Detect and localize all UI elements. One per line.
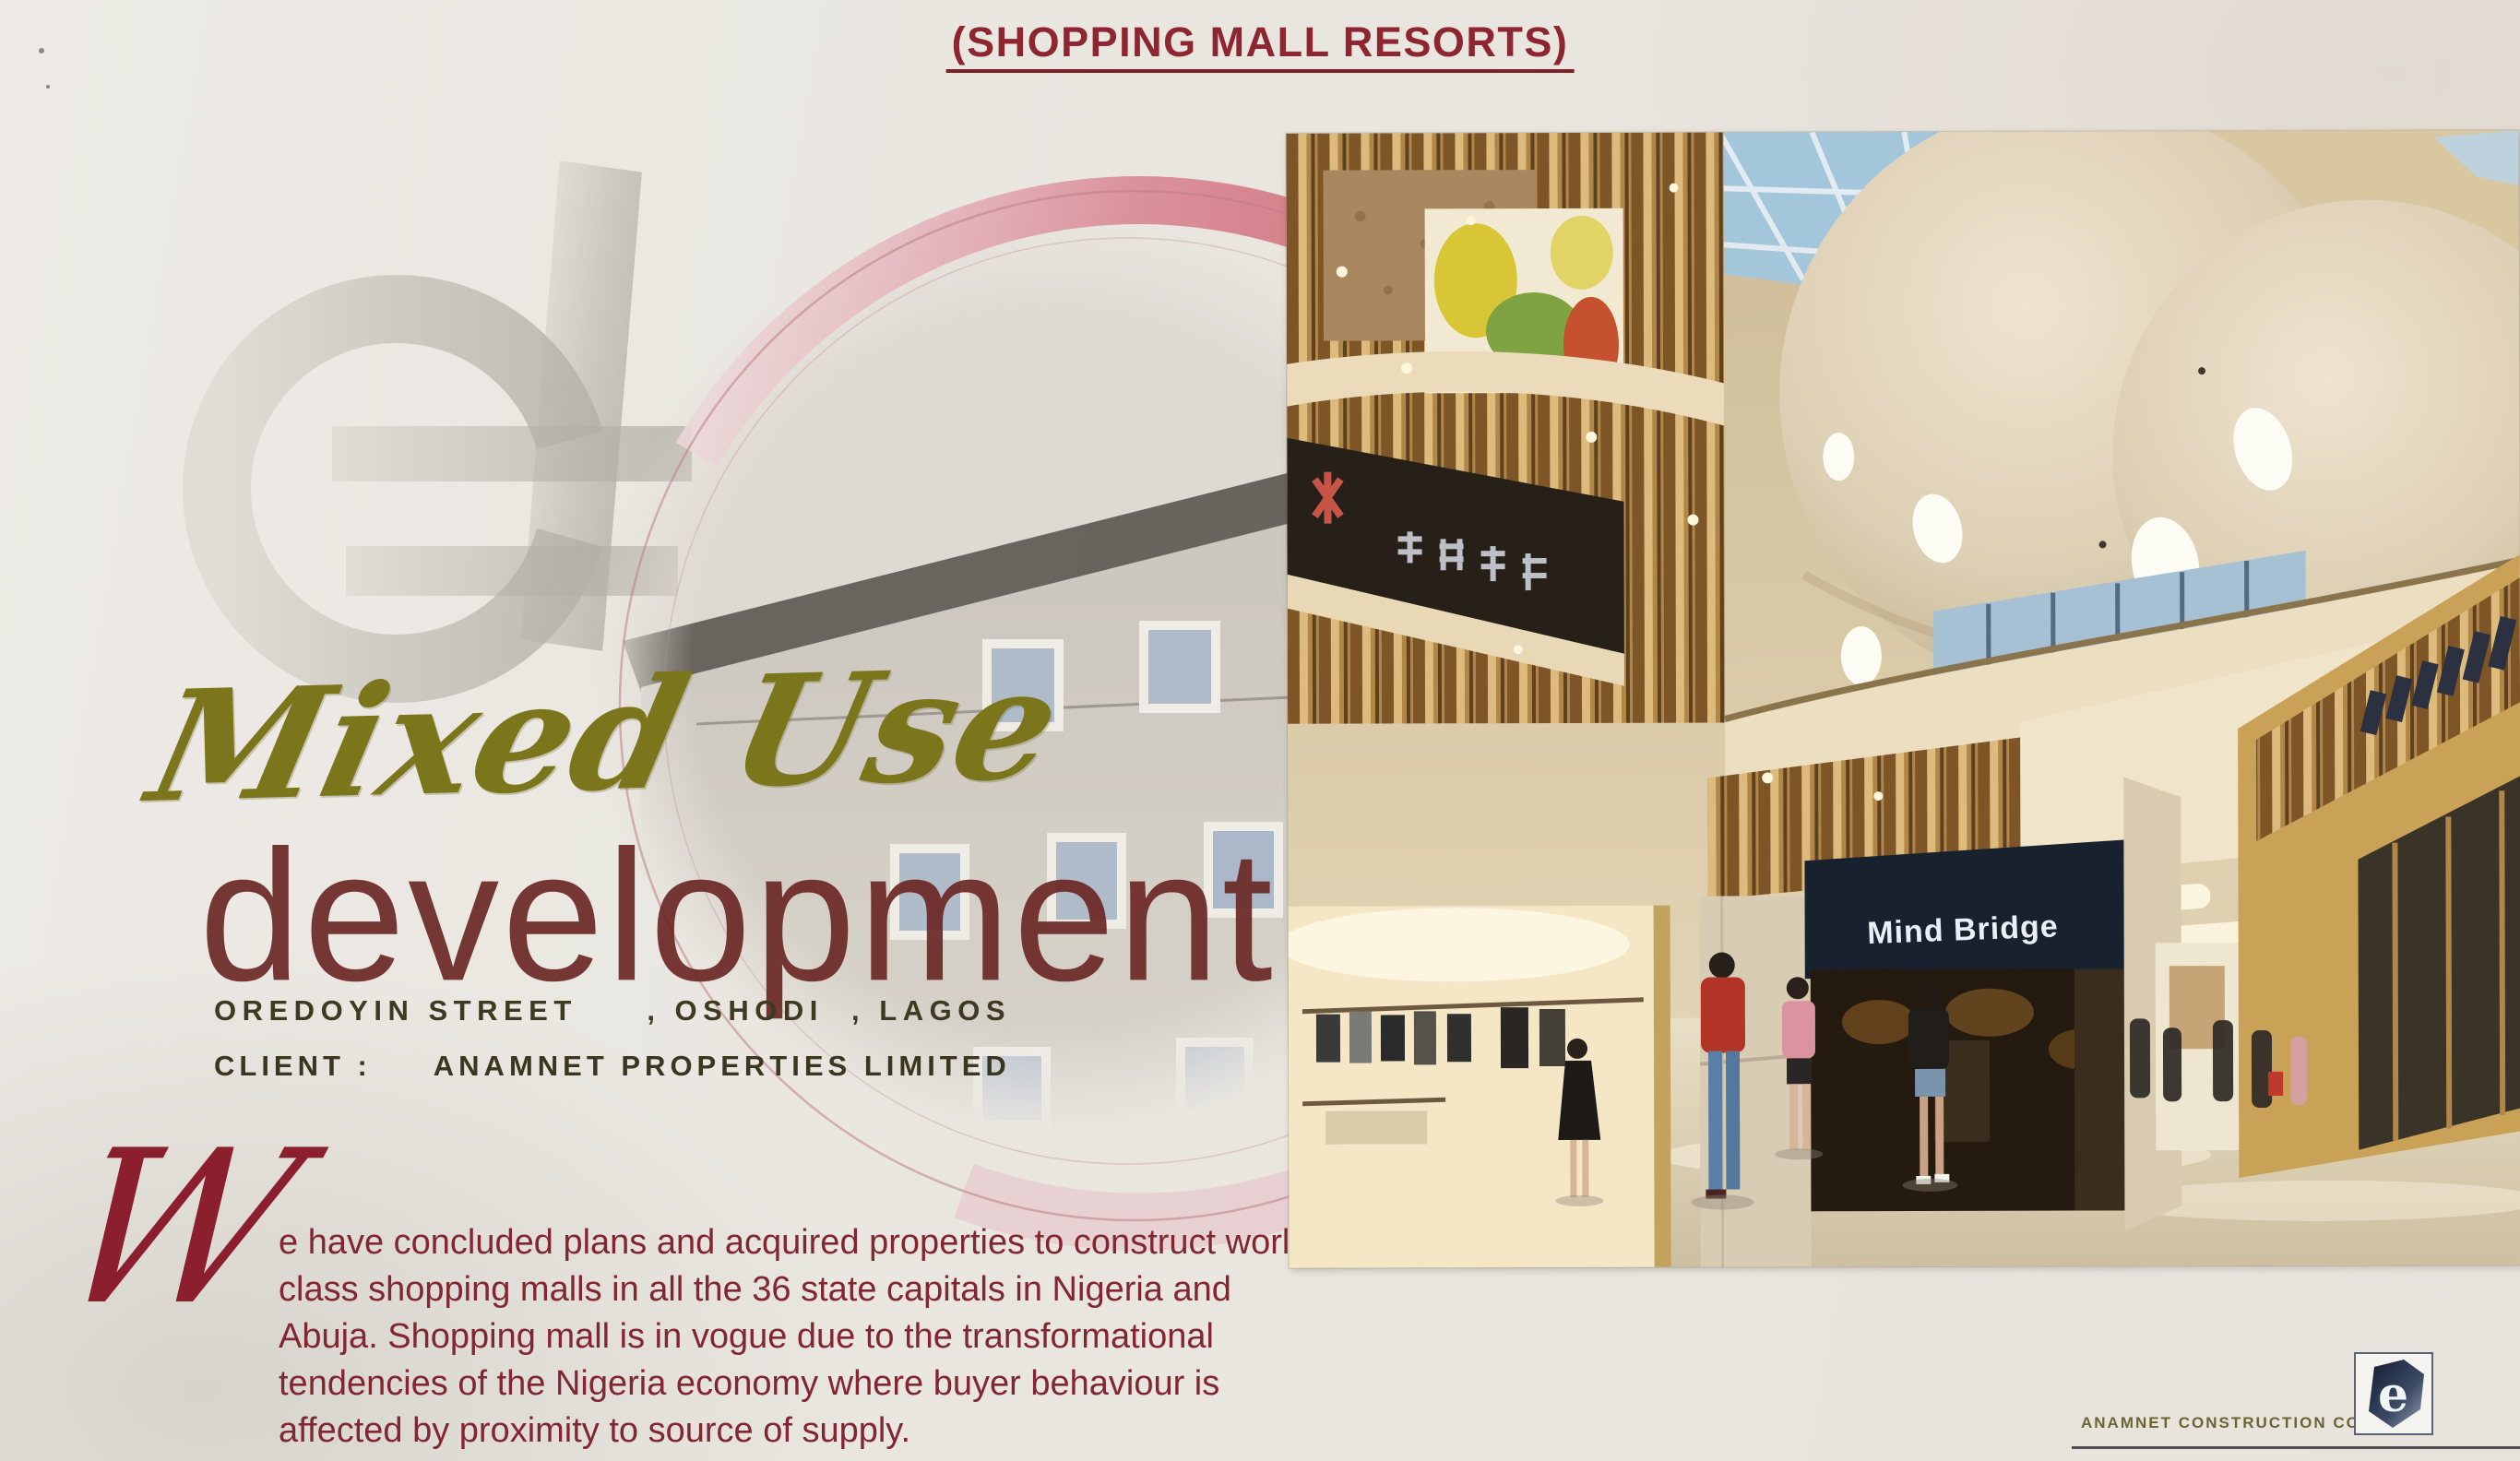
storefront-bright (1286, 906, 1670, 1268)
brochure-page: (SHOPPING MALL RESORTS) Mixed Use develo… (0, 0, 2520, 1461)
page-title: (SHOPPING MALL RESORTS) (946, 18, 1575, 73)
mall-photo-art: Mind Bridge (1286, 130, 2520, 1267)
logo-letter: e (2378, 1367, 2408, 1423)
project-main-title: development (199, 823, 1276, 1009)
paragraph-line: affected by proximity to source of suppl… (279, 1408, 1136, 1455)
paragraph-line: e have concluded plans and acquired prop… (279, 1219, 1136, 1266)
mind-bridge-sign: Mind Bridge (1867, 909, 2060, 951)
footer-rule (2072, 1446, 2520, 1449)
paragraph-line: class shopping malls in all the 36 state… (279, 1266, 1136, 1313)
store-door-frame (1654, 906, 1671, 1267)
mall-interior-photo: Mind Bridge (1286, 130, 2520, 1267)
mind-bridge-fascia (1804, 839, 2125, 979)
intro-paragraph: e have concluded plans and acquired prop… (279, 1219, 1136, 1455)
paragraph-line: Abuja. Shopping mall is in vogue due to … (279, 1313, 1136, 1360)
red-shopping-bag (2268, 1072, 2283, 1096)
project-script-title: Mixed Use (138, 648, 1072, 825)
client-line: CLIENT : ANAMNET PROPERTIES LIMITED (214, 1050, 1011, 1083)
anamnet-logo-mark: e (2356, 1354, 2431, 1433)
anamnet-logo: e (2354, 1352, 2433, 1435)
storefront-mind-bridge: Mind Bridge (1804, 839, 2126, 1211)
paragraph-line: tendencies of the Nigeria economy where … (279, 1360, 1136, 1408)
project-address: OREDOYIN STREET , OSHODI , LAGOS (214, 994, 1011, 1027)
